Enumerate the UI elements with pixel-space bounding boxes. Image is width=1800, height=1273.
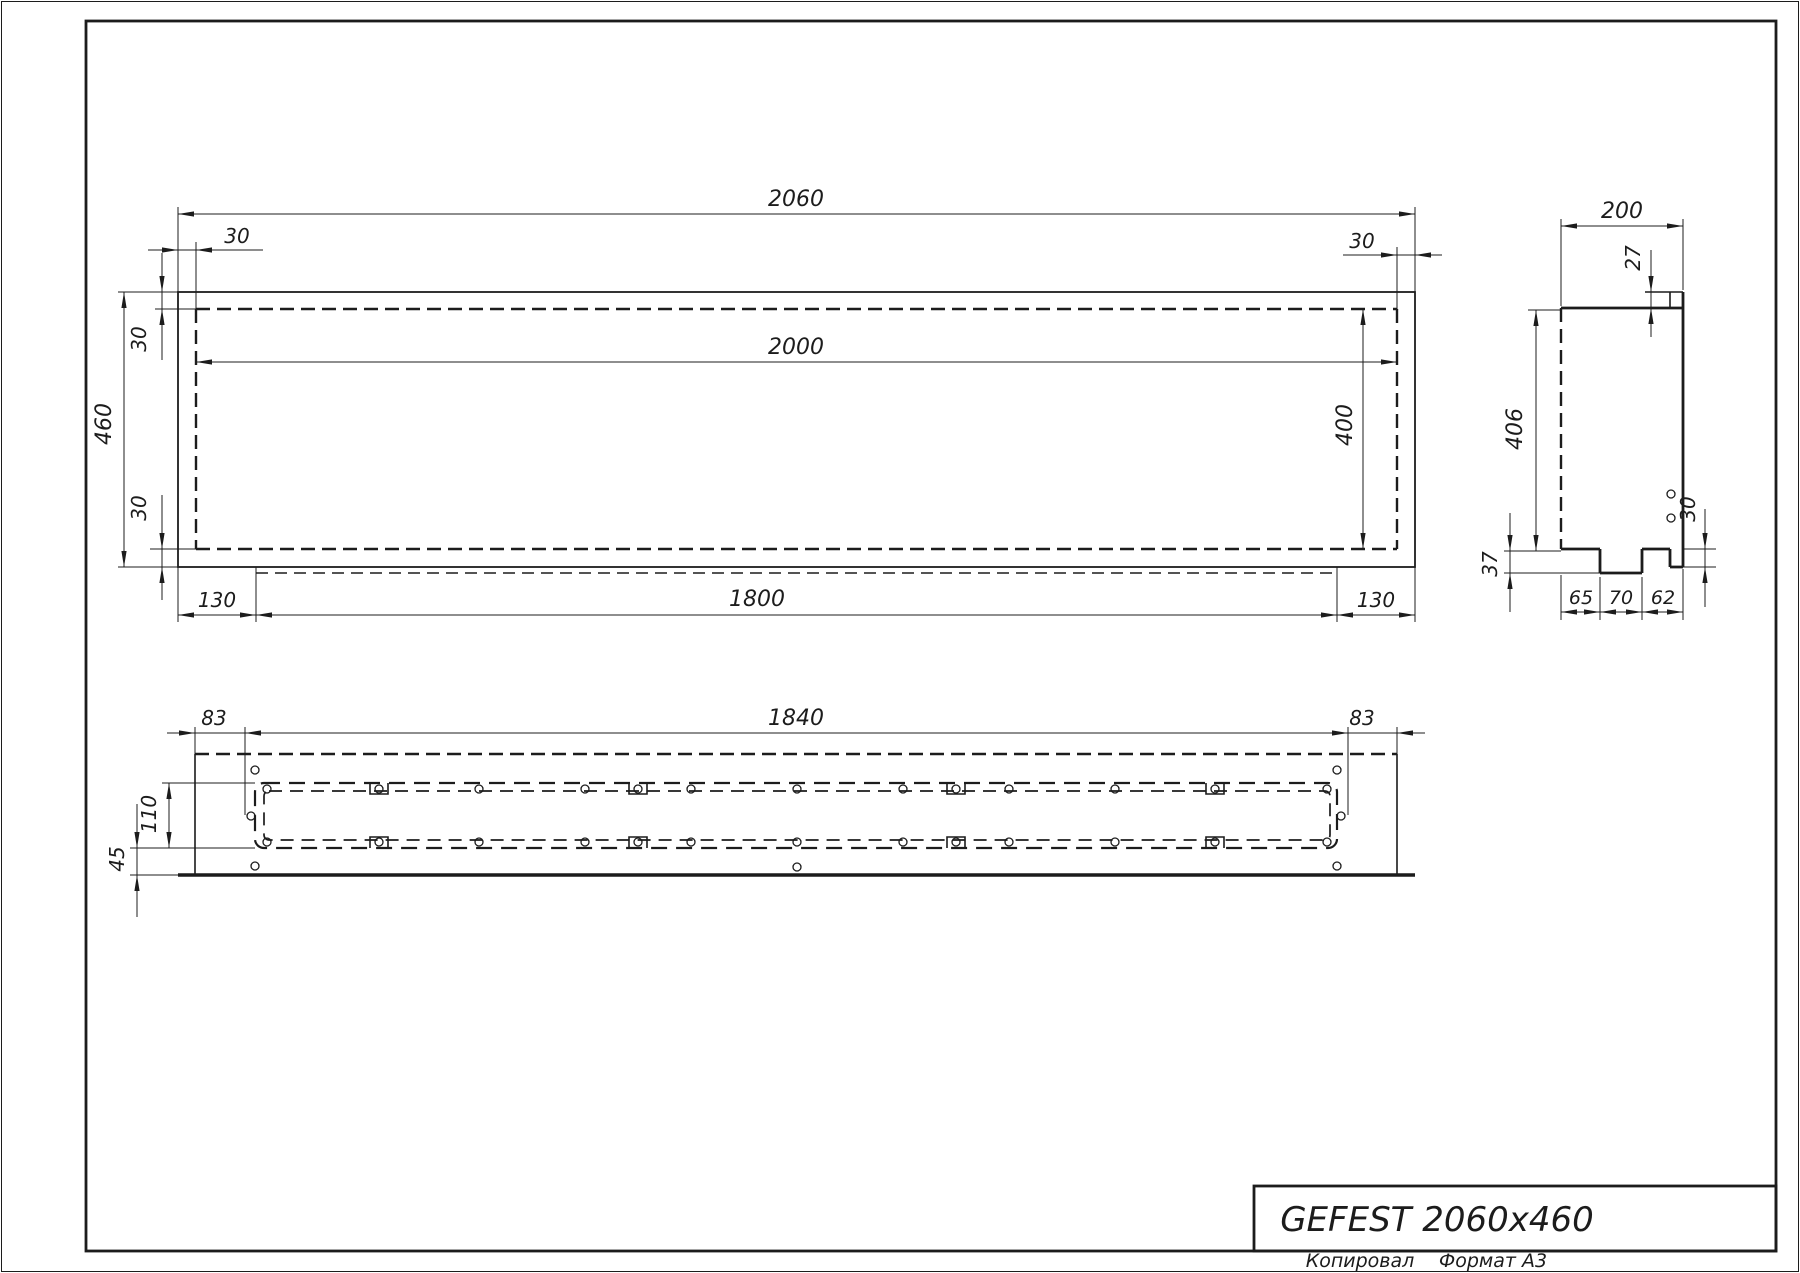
front-dim-inner-height: 400 [1333, 404, 1358, 446]
format-label: Формат А3 [1439, 1250, 1547, 1272]
drawing-title: GEFEST 2060x460 [1280, 1200, 1594, 1240]
bottom-dim-edge-offset: 45 [105, 846, 129, 871]
hole [375, 838, 383, 846]
technical-drawing: 2060 30 30 2000 460 30 30 400 130 1800 1… [0, 0, 1800, 1273]
drawing-sheet: 2060 30 30 2000 460 30 30 400 130 1800 1… [0, 0, 1800, 1273]
hole [793, 863, 801, 871]
side-dim-seg-mid: 70 [1609, 587, 1633, 609]
drawing-frame [86, 21, 1776, 1251]
front-extension-lines [118, 207, 1415, 622]
side-hole [1667, 514, 1675, 522]
bottom-dim-length: 1840 [768, 706, 824, 731]
hole [1333, 766, 1341, 774]
hole [1005, 838, 1013, 846]
front-tray-edges [256, 567, 1337, 573]
front-dim-foot-left: 130 [198, 588, 236, 612]
bottom-dim-trough-width: 110 [137, 795, 161, 833]
bottom-view: 83 1840 83 110 45 [105, 706, 1425, 917]
front-dim-wall-top: 30 [127, 326, 151, 351]
hole [1323, 838, 1331, 846]
front-dim-inner-width: 2000 [768, 335, 824, 360]
title-block: GEFEST 2060x460 Копировал Формат А3 [1254, 1186, 1776, 1272]
side-dim-inner-height: 406 [1503, 408, 1528, 450]
bottom-outline [178, 754, 1415, 875]
side-dimension-lines [1510, 226, 1705, 612]
front-dim-inset-top-right: 30 [1349, 229, 1374, 253]
side-body [1561, 292, 1683, 573]
front-dim-wall-bottom: 30 [127, 495, 151, 520]
front-dim-total-width: 2060 [768, 187, 824, 212]
plate-holes [247, 766, 1345, 871]
front-body [178, 292, 1415, 567]
side-outline [1561, 292, 1683, 573]
bottom-extension-lines [130, 727, 1397, 875]
side-dim-foot-height: 37 [1478, 551, 1502, 577]
front-dimension-lines [124, 214, 1442, 615]
side-dim-lip: 27 [1621, 245, 1645, 271]
hole [251, 766, 259, 774]
front-dim-total-height: 460 [92, 403, 117, 445]
front-dim-inset-top-left: 30 [224, 224, 249, 248]
burner-trough-inner [264, 791, 1330, 840]
bottom-dim-margin-right: 83 [1349, 706, 1374, 730]
bottom-dim-margin-left: 83 [201, 706, 226, 730]
hole [952, 785, 960, 793]
side-dim-seg-left: 65 [1569, 587, 1593, 609]
bottom-dimension-lines [137, 733, 1425, 917]
front-dimension-arrows [121, 211, 1431, 617]
hole [899, 838, 907, 846]
side-hole [1667, 490, 1675, 498]
hole [1111, 838, 1119, 846]
bottom-side-edges [195, 754, 1397, 875]
hole [1333, 862, 1341, 870]
sheet-edge [2, 2, 1799, 1272]
copied-label: Копировал [1306, 1250, 1415, 1272]
hole [1337, 812, 1345, 820]
hole [263, 785, 271, 793]
front-dim-foot-length: 1800 [729, 587, 785, 612]
side-view: 200 27 406 37 30 65 70 62 [1478, 199, 1716, 620]
side-dim-depth: 200 [1601, 199, 1643, 224]
side-dim-seg-right: 62 [1651, 587, 1675, 609]
hole [247, 812, 255, 820]
front-dim-foot-right: 130 [1357, 588, 1395, 612]
hole [251, 862, 259, 870]
front-view: 2060 30 30 2000 460 30 30 400 130 1800 1… [92, 187, 1442, 622]
side-dimension-arrows [1507, 223, 1707, 614]
page-border [2, 2, 1799, 1272]
side-dim-back-lip: 30 [1676, 496, 1700, 521]
